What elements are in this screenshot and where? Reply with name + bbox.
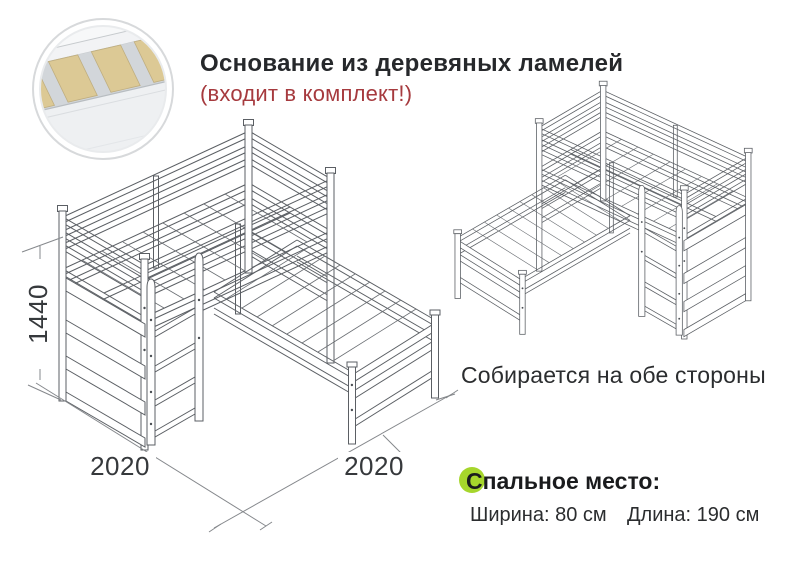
- both-sides-caption: Собирается на обе стороны: [461, 362, 766, 389]
- bed-drawing: [58, 120, 441, 451]
- sleeping-place-width: Ширина: 80 см: [470, 504, 607, 527]
- included-note: (входит в комплект!): [200, 81, 412, 107]
- infographic-page: { "header": { "title": "Основание из дер…: [0, 0, 800, 568]
- height-dimension-label: 1440: [23, 259, 53, 369]
- wooden-slats-inset-icon: [30, 16, 176, 162]
- sleeping-place-length: Длина: 190 см: [627, 504, 759, 527]
- mirrored-bed-drawing: [454, 81, 752, 339]
- page-title: Основание из деревяных ламелей: [200, 50, 623, 78]
- sleeping-place-title: Спальное место:: [466, 468, 660, 495]
- length-dimension-label-right: 2020: [338, 452, 410, 480]
- length-dimension-label-left: 2020: [84, 452, 156, 480]
